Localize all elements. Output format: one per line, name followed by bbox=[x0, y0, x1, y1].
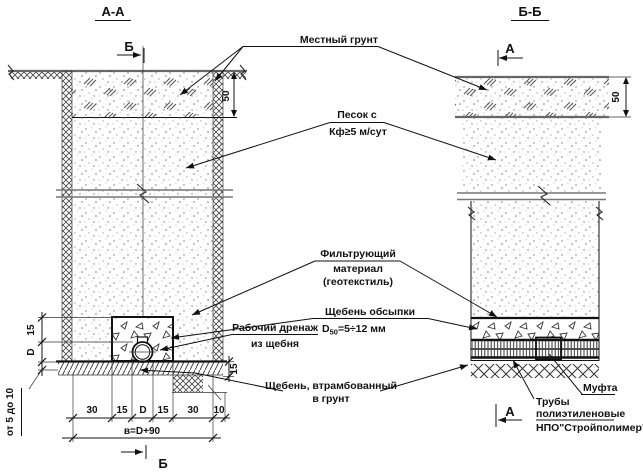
label-local-soil-text: Местный грунт bbox=[300, 34, 378, 46]
cut-marker-b-top-letter: Б bbox=[124, 39, 133, 54]
trench-wall-right bbox=[213, 71, 223, 361]
label-bedding-line1: Щебень обсыпки bbox=[325, 306, 415, 318]
section-aa-view: А-А Б 50 bbox=[5, 4, 247, 471]
dim-layer-range: от 5 до 10 bbox=[5, 387, 16, 436]
pipe-longitudinal bbox=[471, 338, 599, 360]
dim-d: D bbox=[139, 405, 146, 416]
drain-box bbox=[112, 317, 173, 362]
label-rammed-line2: в грунт bbox=[312, 393, 349, 405]
label-pipes-line1: Трубы bbox=[536, 396, 570, 408]
dim-30-left: 30 bbox=[86, 405, 98, 416]
label-working-drain-line1: Рабочий дренаж bbox=[232, 322, 318, 334]
cut-marker-b-top: Б bbox=[117, 39, 144, 63]
dim-left-15: 15 bbox=[26, 324, 37, 336]
dim-left-d: D bbox=[26, 348, 37, 355]
label-bedding-spec: D50=5÷12 мм bbox=[322, 323, 386, 337]
rammed-stone-strip-aa bbox=[56, 362, 227, 376]
dim-right-15-value: 15 bbox=[229, 363, 240, 375]
dim-cover-depth-bb: 50 bbox=[609, 77, 631, 117]
local-soil-band-aa bbox=[72, 71, 237, 118]
dim-total-width: в=D+90 bbox=[124, 426, 161, 437]
dim-cover-depth-bb-value: 50 bbox=[611, 91, 622, 103]
dim-10-offset: 10 bbox=[213, 405, 225, 416]
cut-marker-b-bottom-letter: Б bbox=[158, 456, 167, 471]
label-coupling-text: Муфта bbox=[583, 382, 618, 394]
dim-right-15: 15 bbox=[223, 356, 240, 382]
dim-15-left: 15 bbox=[116, 405, 128, 416]
ground-step-patch bbox=[172, 375, 227, 400]
dim-cover-depth-aa-value: 50 bbox=[221, 90, 232, 102]
local-soil-band-bb bbox=[455, 77, 609, 117]
label-rammed-line1: Щебень, втрамбованный bbox=[265, 380, 397, 392]
section-bb-view: Б-Б А 50 bbox=[455, 4, 631, 427]
drawing-sheet: А-А Б 50 bbox=[0, 0, 643, 474]
label-local-soil: Местный грунт bbox=[180, 34, 487, 95]
sand-upper-bb bbox=[462, 117, 602, 193]
cut-marker-a-top-letter: А bbox=[505, 41, 515, 56]
dim-15-right: 15 bbox=[157, 405, 169, 416]
cut-marker-a-bottom: А bbox=[496, 404, 522, 427]
cut-marker-a-top: А bbox=[498, 41, 523, 66]
label-filter-line1: Фильтрующий bbox=[320, 248, 396, 260]
drawing-canvas: А-А Б 50 bbox=[0, 0, 643, 474]
label-working-drain-line2: из щебня bbox=[251, 338, 299, 350]
label-filter-line2: материал bbox=[333, 263, 383, 275]
bedding-layer-bb bbox=[472, 320, 599, 340]
dim-30-right: 30 bbox=[187, 405, 199, 416]
label-sand-line1: Песок с bbox=[337, 109, 377, 121]
label-pipes-line3: НПО"Стройполимер" bbox=[536, 422, 643, 434]
cut-marker-b-bottom: Б bbox=[121, 445, 168, 471]
label-pipes-line2: полиэтиленовые bbox=[536, 408, 625, 420]
trench-lower-bb bbox=[468, 200, 603, 378]
section-aa-title: А-А bbox=[101, 4, 125, 19]
label-sand-line2: Кф≥5 м/сут bbox=[329, 126, 387, 138]
section-bb-title: Б-Б bbox=[518, 4, 541, 19]
rammed-stone-strip-bb bbox=[471, 364, 599, 378]
ground-shoulder-left bbox=[10, 72, 62, 79]
label-filter-line3: (геотекстиль) bbox=[323, 276, 393, 288]
sand-lower-bb bbox=[472, 200, 599, 318]
cut-marker-a-bottom-letter: А bbox=[505, 404, 515, 419]
